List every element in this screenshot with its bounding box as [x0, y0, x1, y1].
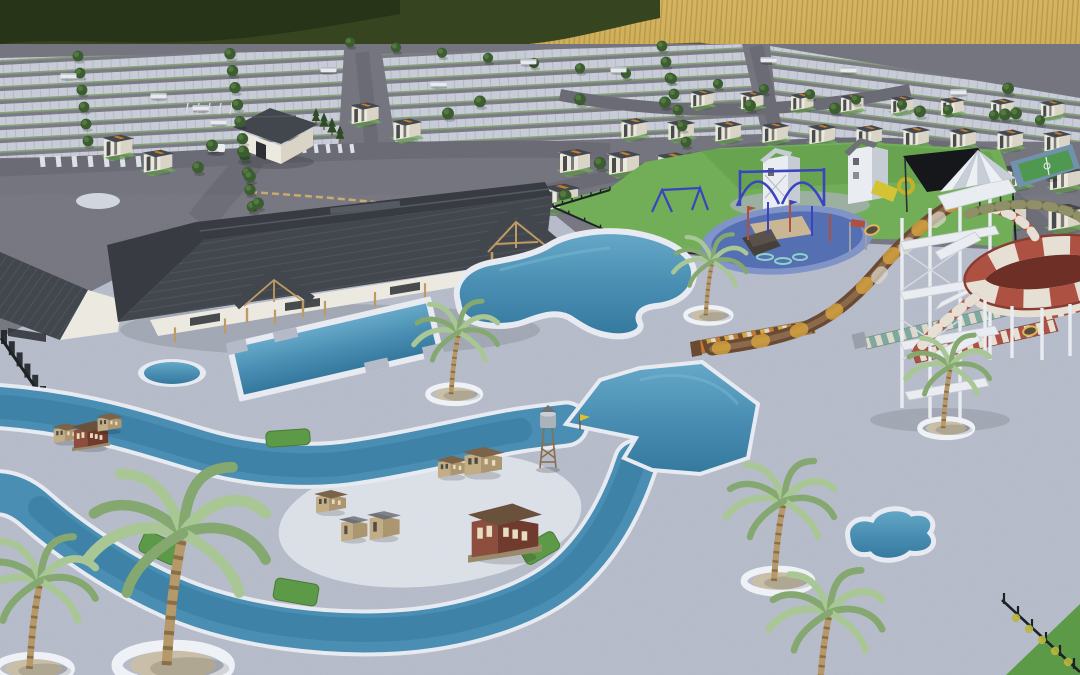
parked-rv: [431, 81, 448, 89]
western-building: [96, 413, 123, 434]
parked-rv: [61, 73, 78, 81]
parked-rv: [321, 67, 338, 75]
planter-bridge: [265, 428, 310, 447]
parked-rv: [951, 89, 968, 97]
parked-rv: [151, 93, 168, 101]
western-building: [314, 490, 348, 516]
parked-rv: [211, 119, 228, 127]
parked-rv: [841, 67, 858, 75]
western-building: [468, 504, 542, 565]
resort-waterpark-render: [0, 0, 1080, 675]
parked-rv: [521, 59, 538, 67]
parked-rv: [611, 67, 628, 75]
render-canvas: [0, 0, 1080, 675]
western-building: [462, 447, 505, 480]
western-building: [339, 516, 368, 543]
parked-rv: [193, 105, 210, 113]
spa-pool: [138, 359, 206, 387]
play-barn-tower: [760, 148, 800, 210]
parked-rv: [761, 57, 778, 65]
western-building: [367, 511, 401, 542]
western-building: [436, 456, 468, 481]
